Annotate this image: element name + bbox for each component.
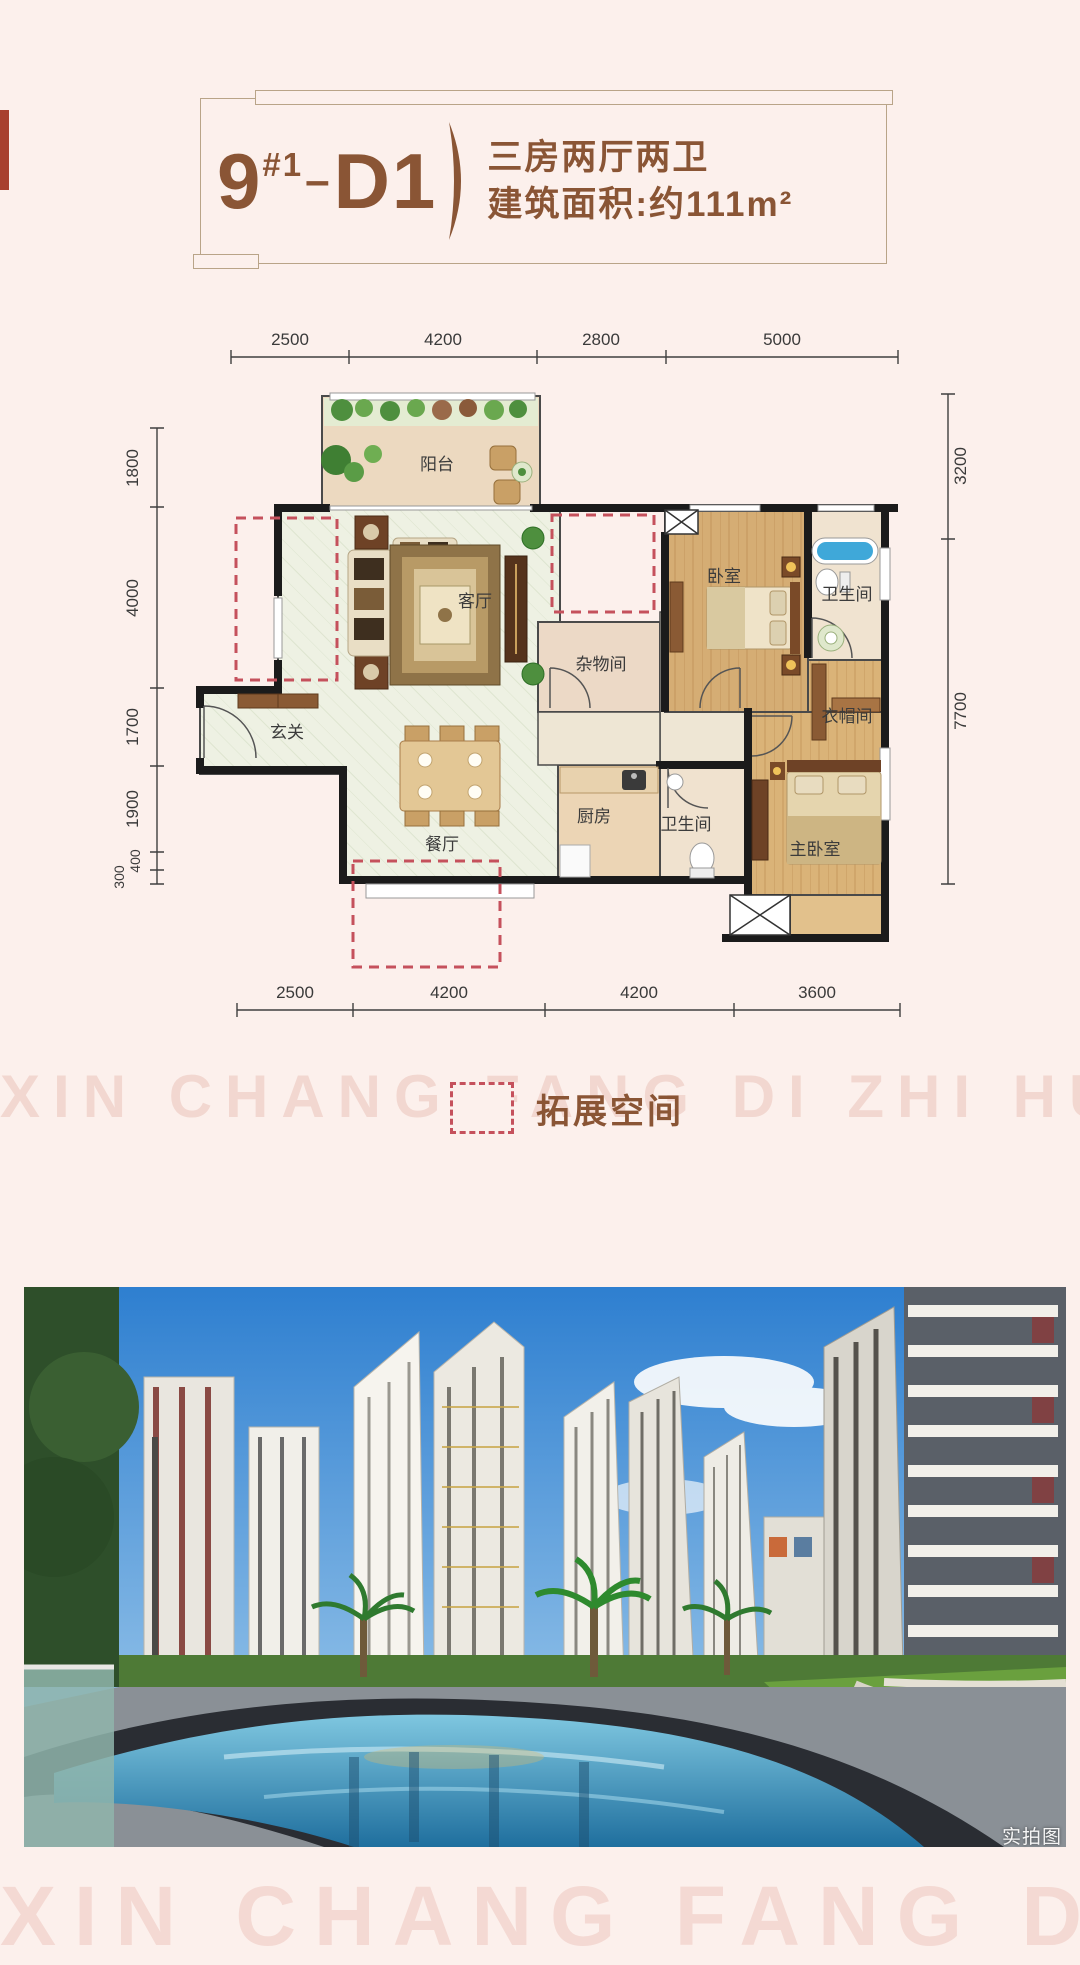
unit-code: 9#1–D1 bbox=[217, 142, 437, 220]
entry-furniture bbox=[238, 694, 318, 708]
dim-right-2: 7700 bbox=[951, 692, 970, 730]
room-label-cloakroom: 衣帽间 bbox=[822, 707, 873, 726]
pool-area bbox=[24, 1667, 1066, 1847]
room-label-balcony: 阳台 bbox=[420, 455, 454, 474]
dim-top-4: 5000 bbox=[763, 330, 801, 349]
expansion-legend-swatch bbox=[450, 1082, 514, 1134]
dim-left-3: 1700 bbox=[123, 708, 142, 746]
block-superscript: #1 bbox=[262, 148, 303, 181]
dim-left-5: 400 bbox=[127, 849, 143, 873]
dim-left-1: 1800 bbox=[123, 449, 142, 487]
room-label-master: 主卧室 bbox=[790, 840, 841, 859]
dim-top-1: 2500 bbox=[271, 330, 309, 349]
floorplan: 阳台 客厅 玄关 餐厅 厨房 卫生间 杂物间 卧室 卫生间 衣帽间 主卧室 25… bbox=[90, 310, 970, 1050]
watermark-text-bottom: XIN CHANG FANG DI ZHI HUA bbox=[0, 1868, 1080, 1965]
dim-top-2: 4200 bbox=[424, 330, 462, 349]
room-label-bath2: 卫生间 bbox=[661, 815, 712, 834]
dim-right-1: 3200 bbox=[951, 447, 970, 485]
block-number: 9 bbox=[217, 142, 262, 220]
room-label-living: 客厅 bbox=[458, 592, 492, 611]
room-label-kitchen: 厨房 bbox=[577, 807, 611, 826]
unit-type: D1 bbox=[334, 142, 438, 220]
community-photo bbox=[24, 1287, 1066, 1847]
dim-top-3: 2800 bbox=[582, 330, 620, 349]
glass-balustrade bbox=[24, 1667, 114, 1847]
dim-left-6: 300 bbox=[111, 865, 127, 889]
crescent-divider-icon bbox=[447, 122, 473, 240]
dim-bottom-2: 4200 bbox=[430, 983, 468, 1002]
dining-furniture bbox=[400, 726, 500, 826]
expansion-legend-label: 拓展空间 bbox=[536, 1084, 684, 1133]
room-label-bath1: 卫生间 bbox=[822, 585, 873, 604]
dim-bottom-4: 3600 bbox=[798, 983, 836, 1002]
dim-left-4: 1900 bbox=[123, 790, 142, 828]
dim-bottom-1: 2500 bbox=[276, 983, 314, 1002]
room-label-bedroom2: 卧室 bbox=[707, 567, 741, 586]
dim-left-2: 4000 bbox=[123, 579, 142, 617]
room-label-storage: 杂物间 bbox=[576, 655, 627, 674]
separator-dash: – bbox=[305, 159, 331, 203]
room-label-entry: 玄关 bbox=[270, 723, 304, 742]
area-spec: 建筑面积:约111m² bbox=[487, 181, 793, 228]
room-label-dining: 餐厅 bbox=[425, 835, 459, 854]
dim-bottom-3: 4200 bbox=[620, 983, 658, 1002]
title-frame: 9#1–D1 三房两厅两卫 建筑面积:约111m² bbox=[200, 98, 887, 264]
left-accent-bar bbox=[0, 110, 9, 190]
photo-caption: 实拍图 bbox=[1002, 1822, 1062, 1849]
layout-spec: 三房两厅两卫 bbox=[487, 134, 793, 181]
legend: 拓展空间 bbox=[450, 1082, 684, 1134]
